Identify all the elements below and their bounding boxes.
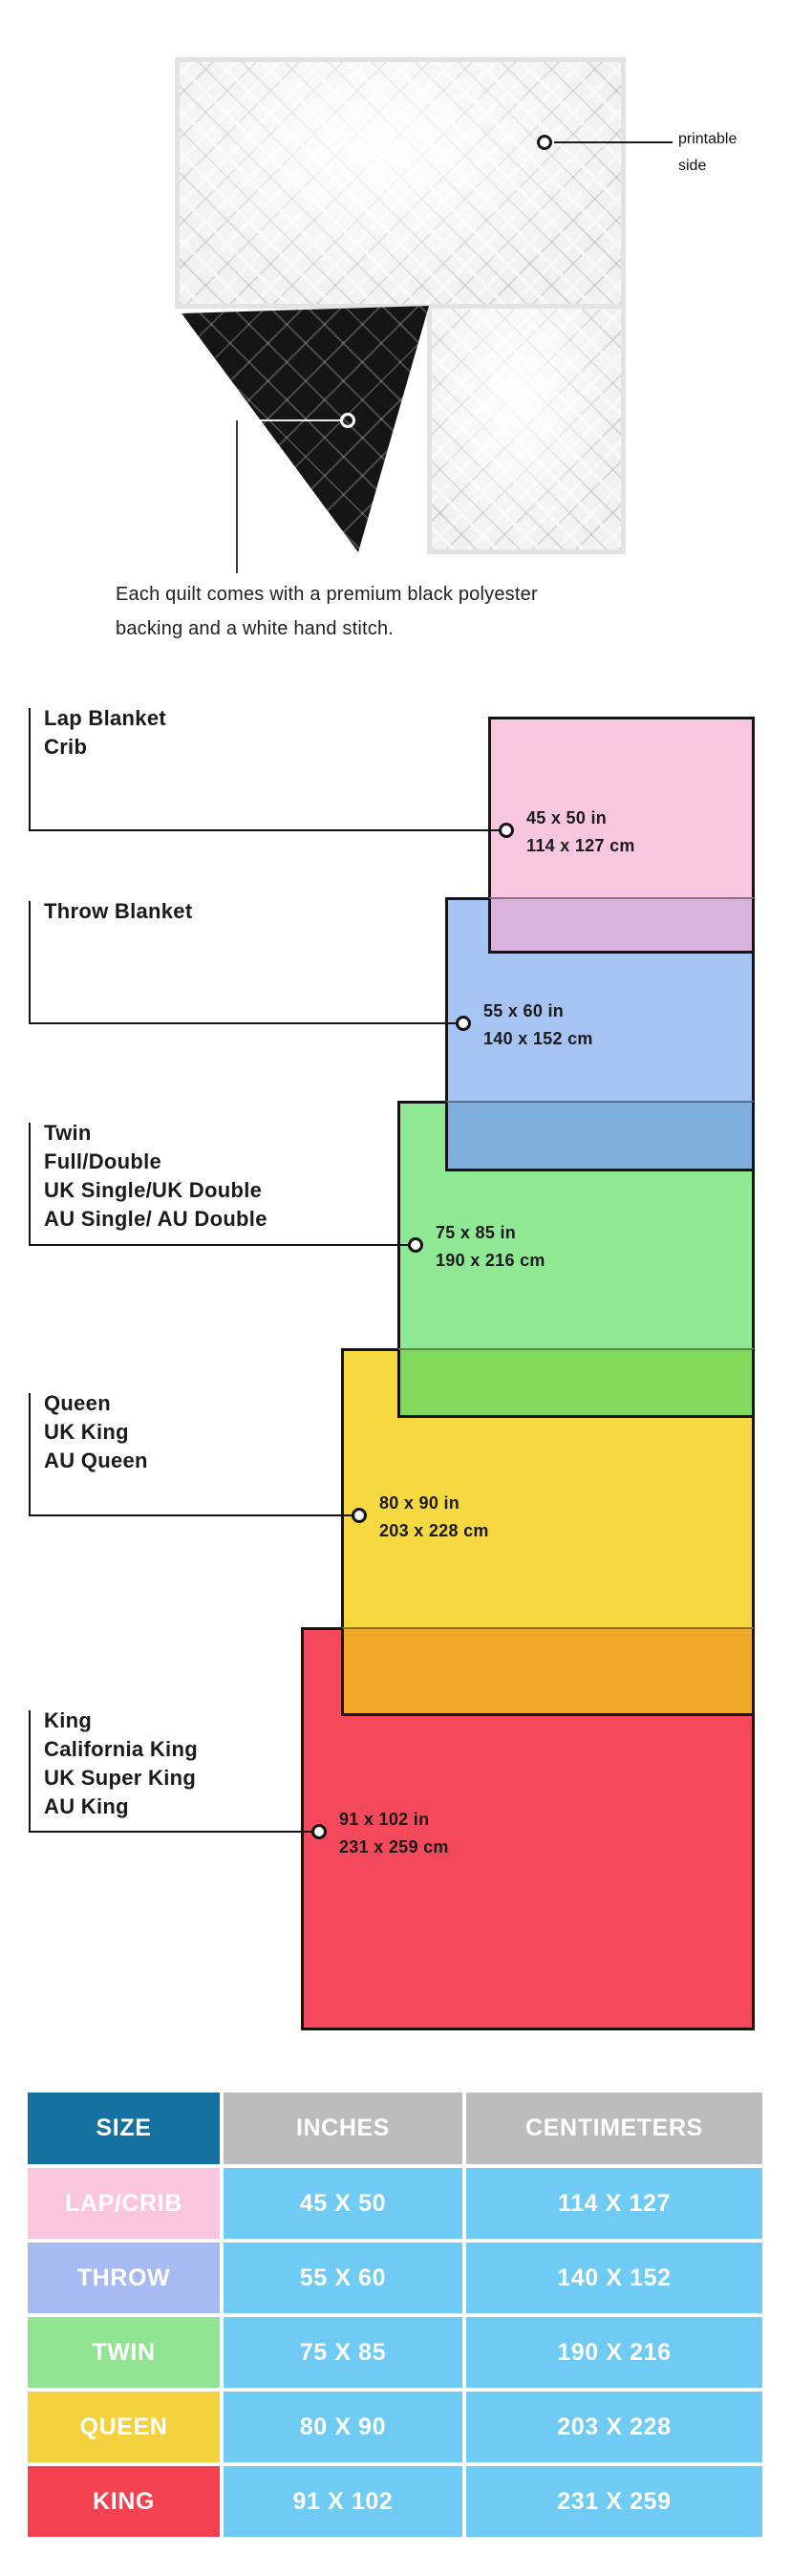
table-header-size: SIZE: [28, 2093, 220, 2164]
size-measurement-throw: 55 x 60 in140 x 152 cm: [483, 998, 593, 1053]
table-row-throw-size: THROW: [28, 2243, 220, 2313]
size-label-lap-line1: Lap Blanket: [44, 704, 166, 733]
connector-vline-twin: [29, 1123, 31, 1246]
size-measurement-king-cm: 231 x 259 cm: [339, 1834, 449, 1861]
connector-vline-king: [29, 1710, 31, 1833]
table-row-lap-crib-cm: 114 X 127: [466, 2168, 762, 2239]
size-dot-twin: [408, 1237, 423, 1253]
size-label-king-line4: AU King: [44, 1792, 198, 1821]
size-label-twin-line4: AU Single/ AU Double: [44, 1205, 267, 1234]
size-measurement-queen: 80 x 90 in203 x 228 cm: [379, 1490, 489, 1545]
table-row-twin-size: TWIN: [28, 2317, 220, 2388]
connector-hline-throw: [29, 1022, 463, 1024]
size-label-throw-line1: Throw Blanket: [44, 897, 192, 926]
size-dot-king: [311, 1824, 327, 1839]
size-label-king-line3: UK Super King: [44, 1764, 198, 1792]
size-measurement-throw-cm: 140 x 152 cm: [483, 1025, 593, 1053]
table-row-queen-inches: 80 X 90: [224, 2392, 462, 2462]
table-row-twin-inches: 75 X 85: [224, 2317, 462, 2388]
connector-vline-queen: [29, 1393, 31, 1516]
size-dot-lap: [499, 823, 514, 838]
size-measurement-king: 91 x 102 in231 x 259 cm: [339, 1806, 449, 1861]
size-label-queen-line1: Queen: [44, 1389, 148, 1418]
quilt-size-infographic: printable side Each quilt comes with a p…: [0, 0, 791, 2576]
size-measurement-twin-inches: 75 x 85 in: [436, 1219, 545, 1247]
size-label-lap-line2: Crib: [44, 733, 166, 762]
table-row-king-size: KING: [28, 2466, 220, 2537]
size-label-lap: Lap BlanketCrib: [44, 704, 166, 762]
size-measurement-throw-inches: 55 x 60 in: [483, 998, 593, 1025]
table-row-lap-crib-inches: 45 X 50: [224, 2168, 462, 2239]
overlap-band-queen-king: [341, 1627, 755, 1716]
size-diagram: Lap BlanketCrib45 x 50 in114 x 127 cmThr…: [0, 0, 791, 2083]
connector-hline-twin: [29, 1244, 416, 1246]
table-row-throw-cm: 140 X 152: [466, 2243, 762, 2313]
table-row-king-inches: 91 X 102: [224, 2466, 462, 2537]
size-measurement-lap-cm: 114 x 127 cm: [526, 832, 635, 860]
size-label-king-line2: California King: [44, 1735, 198, 1764]
table-row-queen-cm: 203 X 228: [466, 2392, 762, 2462]
connector-vline-lap: [29, 708, 31, 831]
table-header-inches: INCHES: [224, 2093, 462, 2164]
connector-hline-king: [29, 1831, 319, 1833]
size-dot-queen: [352, 1508, 367, 1523]
overlap-band-twin-queen: [397, 1348, 755, 1418]
size-dot-throw: [456, 1016, 471, 1031]
size-measurement-queen-inches: 80 x 90 in: [379, 1490, 489, 1517]
size-measurement-lap: 45 x 50 in114 x 127 cm: [526, 805, 635, 860]
overlap-band-throw-twin: [445, 1101, 755, 1171]
size-comparison-table: SIZEINCHESCENTIMETERSLAP/CRIB45 X 50114 …: [28, 2093, 762, 2542]
table-row-twin-cm: 190 X 216: [466, 2317, 762, 2388]
table-row-queen-size: QUEEN: [28, 2392, 220, 2462]
size-label-queen-line2: UK King: [44, 1418, 148, 1447]
size-label-king-line1: King: [44, 1707, 198, 1735]
size-label-twin-line2: Full/Double: [44, 1148, 267, 1176]
size-measurement-queen-cm: 203 x 228 cm: [379, 1517, 489, 1545]
table-header-centimeters: CENTIMETERS: [466, 2093, 762, 2164]
size-measurement-king-inches: 91 x 102 in: [339, 1806, 449, 1834]
size-measurement-twin: 75 x 85 in190 x 216 cm: [436, 1219, 545, 1275]
size-label-queen: QueenUK KingAU Queen: [44, 1389, 148, 1475]
size-measurement-twin-cm: 190 x 216 cm: [436, 1247, 545, 1275]
connector-hline-queen: [29, 1514, 359, 1516]
connector-vline-throw: [29, 901, 31, 1024]
size-label-queen-line3: AU Queen: [44, 1447, 148, 1475]
size-label-twin: TwinFull/DoubleUK Single/UK DoubleAU Sin…: [44, 1119, 267, 1234]
table-row-lap-crib-size: LAP/CRIB: [28, 2168, 220, 2239]
size-label-twin-line1: Twin: [44, 1119, 267, 1148]
connector-hline-lap: [29, 829, 506, 831]
size-measurement-lap-inches: 45 x 50 in: [526, 805, 635, 832]
size-label-twin-line3: UK Single/UK Double: [44, 1176, 267, 1205]
size-label-throw: Throw Blanket: [44, 897, 192, 926]
table-row-king-cm: 231 X 259: [466, 2466, 762, 2537]
overlap-band-lap-throw: [488, 897, 755, 954]
table-row-throw-inches: 55 X 60: [224, 2243, 462, 2313]
size-label-king: KingCalifornia KingUK Super KingAU King: [44, 1707, 198, 1821]
